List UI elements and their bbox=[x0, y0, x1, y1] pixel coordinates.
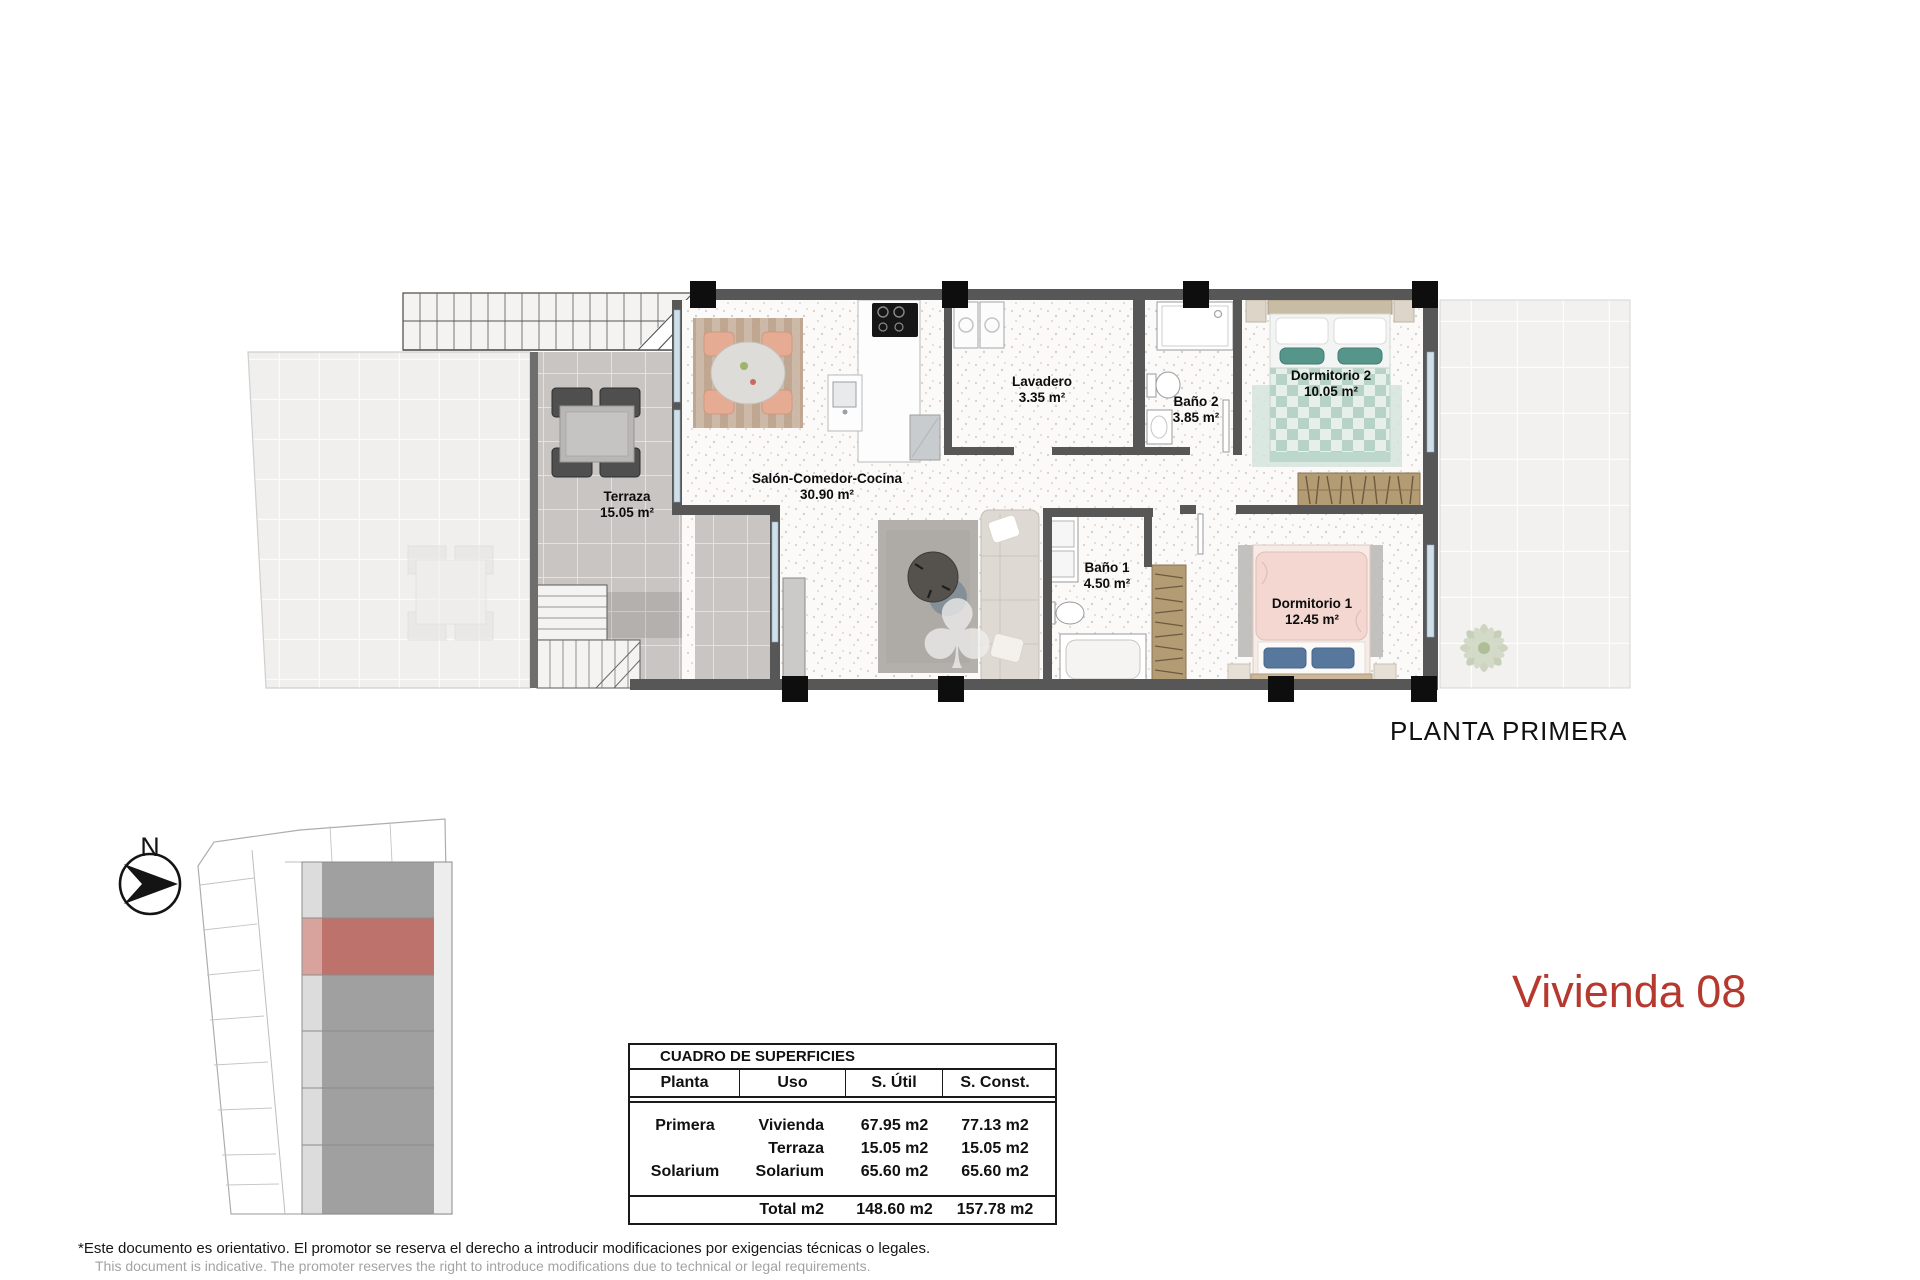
table-row: Primera Vivienda 67.95 m2 77.13 m2 bbox=[630, 1114, 1055, 1137]
room-label-dormitorio1: Dormitorio 1 12.45 m² bbox=[1272, 596, 1352, 628]
surfaces-table-total-row: Total m2 148.60 m2 157.78 m2 bbox=[630, 1197, 1055, 1223]
bedroom1-wardrobe bbox=[1152, 565, 1186, 685]
developer-watermark-icon: ♣ bbox=[914, 579, 1000, 691]
surfaces-table: CUADRO DE SUPERFICIES Planta Uso S. Útil… bbox=[628, 1043, 1057, 1225]
floor-plan-drawing: ♣ bbox=[230, 278, 1640, 708]
surfaces-table-title: CUADRO DE SUPERFICIES bbox=[630, 1045, 1055, 1070]
table-row: Terraza 15.05 m2 15.05 m2 bbox=[630, 1137, 1055, 1160]
dining-set bbox=[693, 318, 803, 428]
palm-tree bbox=[1460, 624, 1508, 672]
neighbour-solarium-left bbox=[248, 352, 530, 688]
room-label-lavadero: Lavadero 3.35 m² bbox=[1012, 374, 1072, 406]
col-sconst: S. Const. bbox=[943, 1070, 1047, 1096]
site-key: N bbox=[95, 815, 475, 1225]
hall-wardrobe bbox=[1298, 473, 1420, 507]
col-planta: Planta bbox=[630, 1070, 740, 1096]
room-label-salon: Salón-Comedor-Cocina 30.90 m² bbox=[752, 471, 902, 503]
col-uso: Uso bbox=[740, 1070, 846, 1096]
site-highlight-unit bbox=[302, 918, 434, 975]
disclaimer: *Este documento es orientativo. El promo… bbox=[78, 1240, 930, 1274]
terrace-right bbox=[1440, 300, 1630, 688]
table-row: Solarium Solarium 65.60 m2 65.60 m2 bbox=[630, 1160, 1055, 1183]
col-sutil: S. Útil bbox=[846, 1070, 943, 1096]
disclaimer-en: This document is indicative. The promote… bbox=[95, 1258, 930, 1274]
room-label-bano1: Baño 1 4.50 m² bbox=[1084, 560, 1131, 592]
svg-text:N: N bbox=[140, 832, 160, 862]
room-label-bano2: Baño 2 3.85 m² bbox=[1173, 394, 1220, 426]
upper-stairs bbox=[403, 293, 692, 350]
living-room: ♣ bbox=[878, 510, 1039, 691]
plan-caption: PLANTA PRIMERA bbox=[1390, 716, 1627, 747]
unit-title: Vivienda 08 bbox=[1512, 966, 1746, 1018]
site-plan bbox=[198, 819, 452, 1214]
north-arrow-icon: N bbox=[120, 832, 180, 914]
surfaces-table-header: Planta Uso S. Útil S. Const. bbox=[630, 1070, 1055, 1098]
room-label-dormitorio2: Dormitorio 2 10.05 m² bbox=[1291, 368, 1371, 400]
surfaces-table-body: Primera Vivienda 67.95 m2 77.13 m2 Terra… bbox=[630, 1103, 1055, 1192]
room-label-terraza: Terraza 15.05 m² bbox=[600, 489, 654, 521]
brochure-page: ♣ bbox=[0, 0, 1920, 1280]
disclaimer-es: *Este documento es orientativo. El promo… bbox=[78, 1240, 930, 1257]
